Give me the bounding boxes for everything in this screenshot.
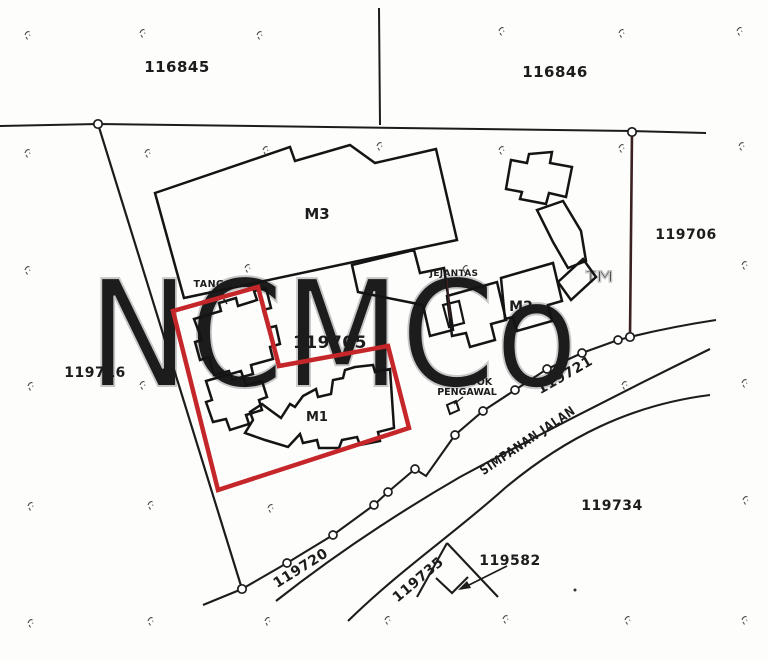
annotation-label-pengawal: PENGAWAL bbox=[437, 387, 497, 398]
lot-label-119734: 119734 bbox=[581, 498, 642, 514]
lot-label-119720: 119720 bbox=[271, 546, 332, 592]
lot-label-116845: 116845 bbox=[144, 58, 210, 76]
building-label-m3: M3 bbox=[304, 205, 329, 223]
lot-label-119716: 119716 bbox=[64, 365, 125, 381]
north-boundary-line bbox=[0, 124, 706, 133]
annotation-label-jejantas: JEJANTAS bbox=[429, 269, 479, 279]
north-spur-line bbox=[379, 8, 380, 125]
lot-label-116846: 116846 bbox=[522, 63, 588, 81]
east-boundary-line bbox=[630, 132, 632, 337]
lot-label-119582: 119582 bbox=[479, 553, 540, 569]
building-label-m2: M2 bbox=[509, 299, 533, 315]
lot-label-119705: 119705 bbox=[293, 333, 367, 353]
lot-label-119706: 119706 bbox=[655, 227, 716, 243]
building-label-m1: M1 bbox=[306, 410, 328, 425]
cadastral-map: NCMCo ™ bbox=[0, 0, 768, 661]
northeast-building-upper-outline bbox=[506, 152, 572, 204]
cadastral-map-page: NCMCo ™ bbox=[0, 0, 768, 661]
annotation-label-tangga: TANGGA bbox=[194, 279, 241, 290]
